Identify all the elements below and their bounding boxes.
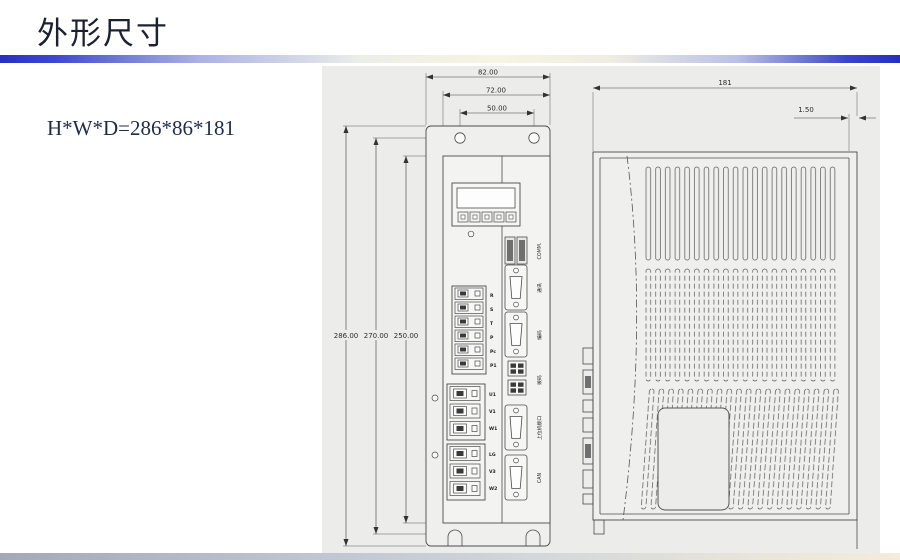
port-label-4: 上位机接口: [536, 416, 543, 440]
port-label-1: 通讯: [536, 283, 543, 293]
nameplate: [658, 408, 729, 510]
dim-label-270: 270.00: [364, 332, 389, 340]
dim-label-50: 50.00: [487, 105, 507, 113]
motor-terminal-block: U1 V1 W1: [447, 384, 497, 440]
terminal-label: R: [490, 293, 494, 299]
dim-label-72: 72.00: [486, 87, 506, 95]
dim-label-250: 250.00: [394, 332, 419, 340]
terminal-label: S: [490, 307, 493, 313]
aux-terminal-block: LG V3 W2: [447, 444, 497, 500]
panel-screw: [432, 452, 438, 458]
dim-label-286: 286.00: [334, 332, 359, 340]
side-view-drawing: 181 1.50: [578, 68, 878, 552]
terminal-label: V1: [489, 409, 496, 415]
port-label-2: 编码: [536, 330, 543, 340]
side-dimensions: 181 1.50: [593, 79, 876, 151]
terminal-label: W1: [489, 426, 497, 432]
terminal-label: U1: [489, 392, 496, 398]
front-view-drawing: 82.00 72.00 50.00 286.00 270.00: [330, 68, 580, 552]
mounting-hole: [529, 133, 539, 143]
drawing-canvas: 82.00 72.00 50.00 286.00 270.00: [322, 66, 880, 553]
bottom-divider-bar: [0, 553, 900, 560]
panel-screw: [468, 231, 474, 237]
terminal-label: W2: [489, 486, 497, 492]
side-connector-pins: [583, 348, 593, 504]
dim-label-150: 1.50: [798, 106, 814, 114]
terminal-label: P1: [490, 363, 497, 369]
page-title: 外形尺寸: [37, 8, 169, 53]
dim-label-82: 82.00: [478, 69, 498, 77]
title-divider-bar: [0, 55, 900, 63]
led-display: [457, 188, 515, 208]
dimension-note: H*W*D=286*86*181: [47, 116, 235, 141]
terminal-label: V3: [489, 469, 496, 475]
terminal-label: Pc: [490, 349, 496, 355]
port-label-comm: COMM.: [537, 243, 543, 260]
dim-label-181: 181: [718, 79, 731, 87]
presentation-slide: 外形尺寸 H*W*D=286*86*181: [0, 0, 900, 560]
terminal-label: LG: [489, 452, 496, 458]
port-label-can: CAN: [537, 472, 543, 483]
vent-slots-top: [644, 166, 838, 261]
mounting-hole: [455, 133, 465, 143]
vent-slots-middle: [644, 268, 838, 382]
port-label-3: 拨码: [536, 375, 543, 385]
panel-screw: [432, 395, 438, 401]
keypad-buttons: [458, 212, 516, 222]
